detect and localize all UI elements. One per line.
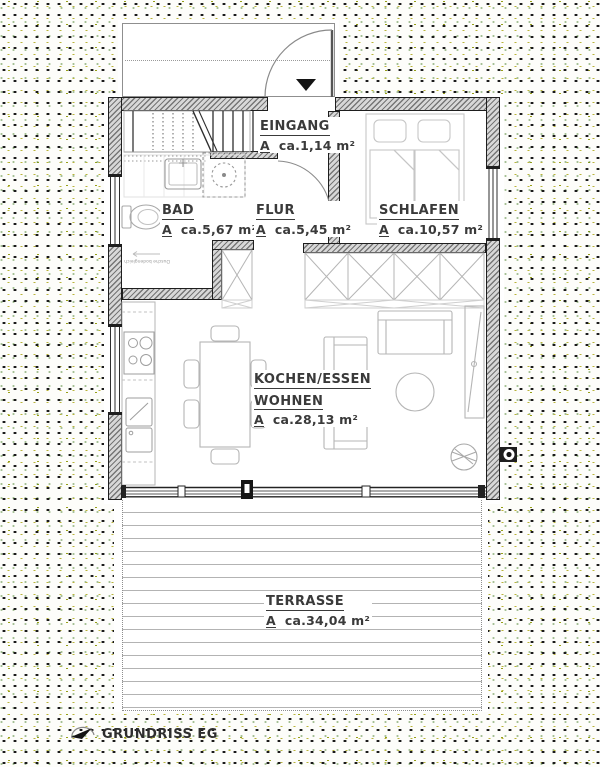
wall-left-middle (108, 246, 122, 326)
north-arrow-icon (68, 722, 98, 746)
wall-top-left (108, 97, 268, 111)
room-name: FLUR (256, 204, 295, 220)
room-name: WOHNEN (254, 395, 323, 411)
label-bad: BAD Aca.5,67 m² (160, 201, 259, 237)
wall-left-lower (108, 414, 122, 500)
plan-title: GRUNDRISS EG (102, 727, 218, 742)
label-wohnen: KOCHEN/ESSEN WOHNEN Aca.28,13 m² (252, 370, 373, 427)
wall-closet-left-top (212, 240, 254, 250)
wall-left-upper (108, 97, 122, 176)
room-area: ca.34,04 m² (285, 613, 370, 628)
room-name: BAD (162, 204, 194, 220)
label-terrasse: TERRASSE Aca.34,04 m² (264, 592, 372, 628)
wall-right-upper (486, 97, 500, 168)
wall-schlafen-bottom (303, 243, 486, 253)
room-name: TERRASSE (266, 595, 344, 611)
wall-bad-bottom (122, 288, 214, 300)
room-name: KOCHEN/ESSEN (254, 373, 371, 389)
room-name: EINGANG (260, 120, 330, 136)
wall-top-right (335, 97, 500, 111)
label-schlafen: SCHLAFEN Aca.10,57 m² (377, 201, 485, 237)
room-area: ca.10,57 m² (398, 222, 483, 237)
canopy-dotted-line (125, 60, 332, 61)
room-area: ca.1,14 m² (279, 138, 355, 153)
room-name: SCHLAFEN (379, 204, 459, 220)
shower-note: Dusche bodengleich (124, 258, 170, 263)
entrance-canopy (122, 23, 335, 97)
label-flur: FLUR Aca.5,45 m² (254, 201, 353, 237)
label-eingang: EINGANG Aca.1,14 m² (258, 117, 357, 153)
wall-right-lower (486, 240, 500, 500)
room-area: ca.5,67 m² (181, 222, 257, 237)
room-area: ca.5,45 m² (275, 222, 351, 237)
floor-plan-page: { "title": { "plan_label": "GRUNDRISS EG… (0, 0, 600, 767)
room-area: ca.28,13 m² (273, 412, 358, 427)
